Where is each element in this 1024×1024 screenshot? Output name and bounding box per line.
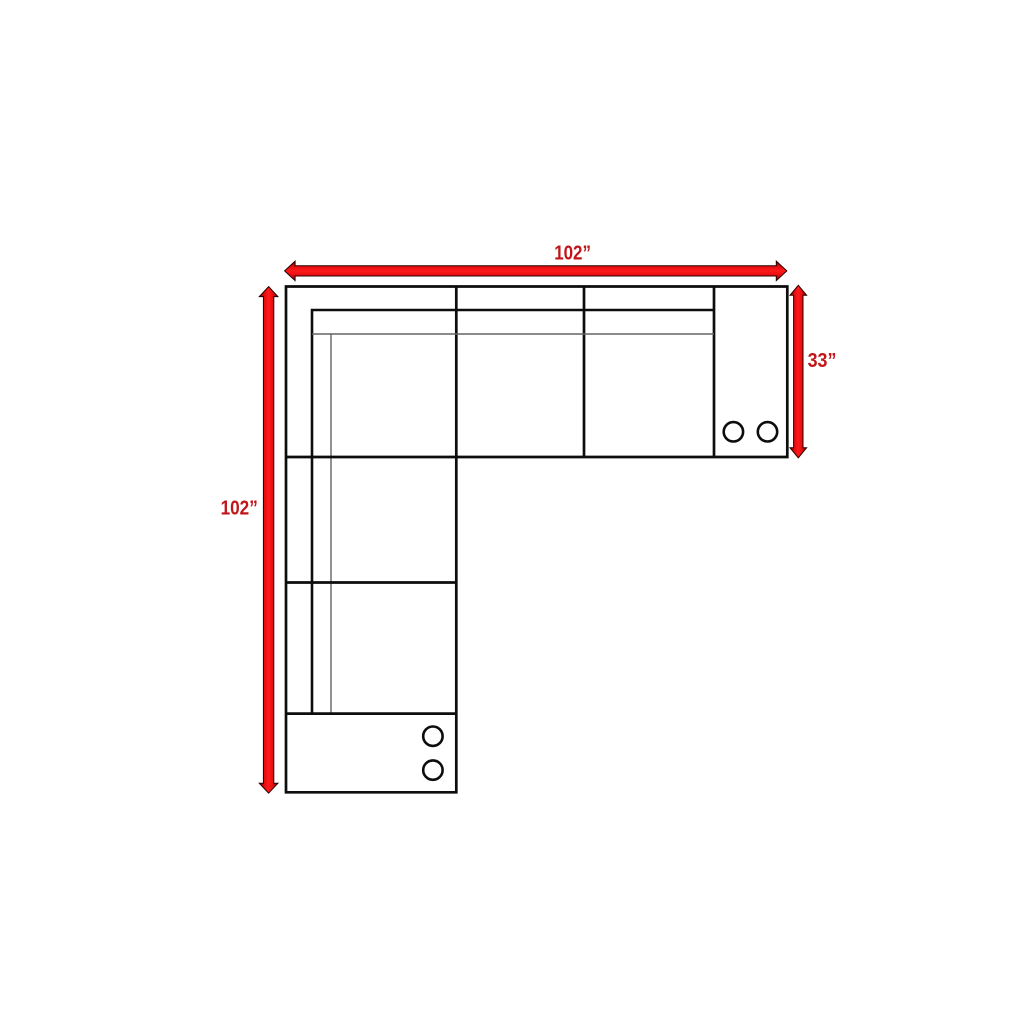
- svg-text:33”: 33”: [808, 349, 837, 372]
- svg-text:102”: 102”: [221, 497, 258, 520]
- svg-text:102”: 102”: [554, 241, 591, 264]
